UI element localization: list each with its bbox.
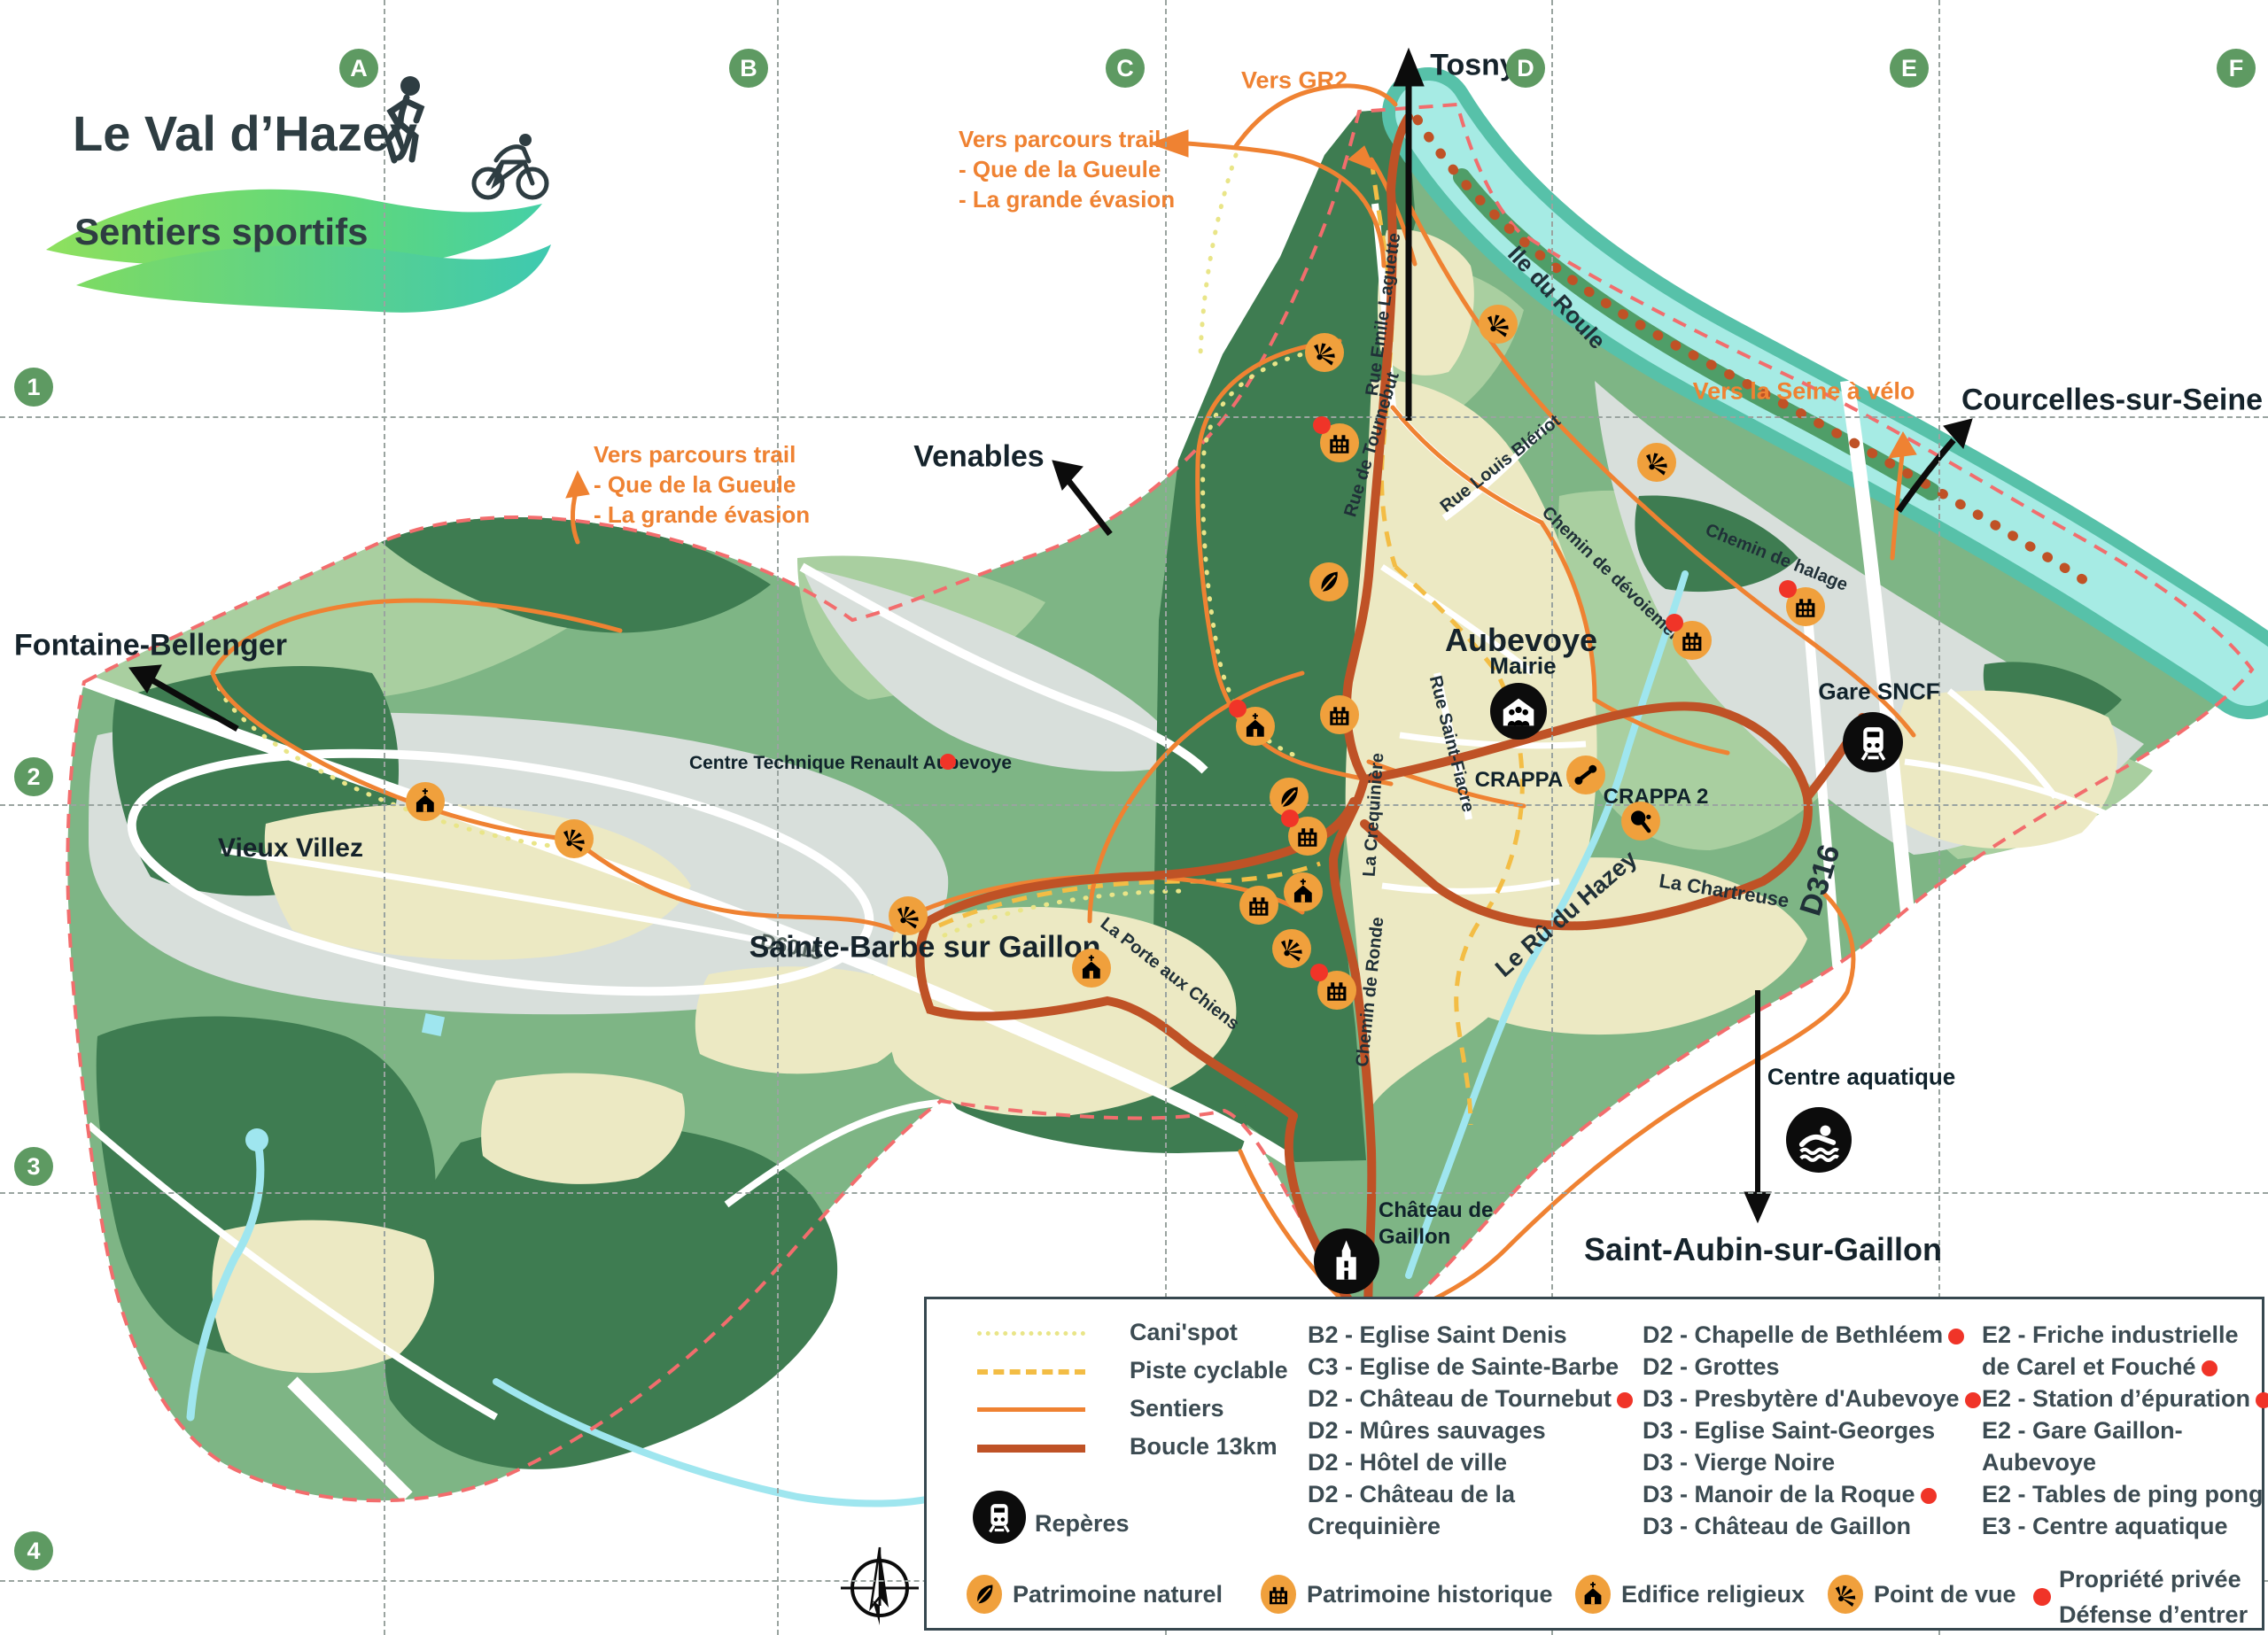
label-vers-parcours-trail-nord: Vers parcours trail - Que de la Gueule -… [959, 124, 1175, 214]
legend-poi-item: D3 - Presbytère d'Aubevoye [1643, 1383, 1981, 1414]
label-mairie: Mairie [1489, 653, 1556, 680]
legend-canispot-line [977, 1331, 1085, 1336]
viewpoint-marker-icon [1637, 443, 1676, 482]
grid-letter-F: F [2217, 49, 2256, 88]
legend-poi-item: de Carel et Fouché [1982, 1351, 2268, 1383]
legend-cat-point-de-vue: Point de vue [1828, 1575, 2016, 1614]
legend-cat-label: Patrimoine historique [1307, 1581, 1553, 1608]
grid-number-2: 2 [14, 757, 53, 796]
private-property-dot [1921, 1488, 1937, 1504]
legend-boucle-label: Boucle 13km [1130, 1433, 1278, 1461]
legend-poi-item: Aubevoye [1982, 1446, 2268, 1478]
leaf-icon [967, 1575, 1002, 1614]
private-property-dot [1965, 1392, 1981, 1408]
compass-icon [841, 1547, 919, 1625]
legend-boucle-line [977, 1445, 1085, 1453]
private-property-dot [1229, 700, 1247, 717]
label-vers-seine-a-velo: Vers la Seine à vélo [1693, 378, 1915, 406]
historic-marker-icon [1317, 971, 1356, 1010]
historic-marker-icon [1320, 423, 1359, 462]
legend-reperes-label: Repères [1035, 1510, 1130, 1538]
label-crappa1: CRAPPA 1 [1475, 768, 1581, 793]
legend-sentiers-line [977, 1407, 1085, 1412]
legend-poi-item: D3 - Eglise Saint-Georges [1643, 1414, 1981, 1446]
town-tosny: Tosny [1430, 49, 1517, 83]
town-courcelles: Courcelles-sur-Seine [1961, 384, 2263, 418]
viewpoint-marker-icon [1305, 333, 1344, 372]
poster-subtitle: Sentiers sportifs [74, 211, 368, 253]
town-venables: Venables [913, 440, 1044, 475]
viewpoint-marker-icon [1272, 929, 1311, 968]
grid-letter-E: E [1890, 49, 1929, 88]
label-gare-sncf: Gare SNCF [1818, 678, 1939, 706]
legend-poi-item: D3 - Vierge Noire [1643, 1446, 1981, 1478]
legend-poi-item: D2 - Hôtel de ville [1308, 1446, 1633, 1478]
dumbbell-marker-icon [1566, 756, 1605, 794]
private-note-line: Défense d’entrer [2059, 1597, 2248, 1632]
pingpong-marker-icon [1621, 802, 1660, 841]
label-centre-technique: Centre Technique Renault Aubevoye [689, 753, 1012, 774]
chateau-line: Château de [1379, 1197, 1493, 1224]
parcours-line: Vers parcours trail [959, 124, 1175, 154]
gridline-vertical [384, 0, 385, 1635]
legend-poi-item: D2 - Château de la [1308, 1478, 1633, 1510]
legend-column-3: E2 - Friche industriellede Carel et Fouc… [1982, 1319, 2268, 1542]
private-property-dot [1310, 964, 1328, 981]
gridline-horizontal [0, 416, 2268, 418]
legend-reperes-icon [973, 1491, 1026, 1544]
viewpoint-marker-icon [889, 896, 928, 935]
church-marker-icon [406, 782, 445, 821]
private-property-dot [940, 754, 956, 770]
legend-poi-item: D3 - Manoir de la Roque [1643, 1478, 1981, 1510]
swim-marker-icon [1786, 1107, 1852, 1173]
leaf-marker-icon [1309, 562, 1348, 601]
label-chateau-de-gaillon: Château de Gaillon [1379, 1197, 1493, 1251]
historic-marker-icon [1786, 587, 1825, 626]
legend-sentiers-label: Sentiers [1130, 1395, 1224, 1422]
legend-box: Cani'spot Piste cyclable Sentiers Boucle… [924, 1297, 2264, 1631]
legend-cat-label: Patrimoine naturel [1013, 1581, 1223, 1608]
private-property-dot [2202, 1360, 2218, 1376]
private-property-dot [2033, 1588, 2051, 1606]
viewpoint-icon [1828, 1575, 1863, 1614]
parcours-line: - La grande évasion [959, 184, 1175, 214]
private-note-line: Propriété privée [2059, 1561, 2248, 1597]
grid-letter-D: D [1506, 49, 1545, 88]
grid-letter-C: C [1106, 49, 1145, 88]
private-property-dot [1666, 614, 1683, 632]
label-vers-gr2: Vers GR2 [1241, 67, 1348, 95]
chateau-line: Gaillon [1379, 1224, 1493, 1251]
legend-poi-item: D3 - Château de Gaillon [1643, 1510, 1981, 1542]
map-poster: ABCDEF 1234 Le Val d’Hazey Sentiers spor… [0, 0, 2268, 1635]
legend-cat-patrimoine-naturel: Patrimoine naturel [967, 1575, 1223, 1614]
parcours-line: - Que de la Gueule [594, 469, 810, 500]
legend-cat-label: Point de vue [1874, 1581, 2016, 1608]
parcours-line: - La grande évasion [594, 500, 810, 530]
private-property-dot [1281, 810, 1299, 827]
town-vieux-villez: Vieux Villez [218, 833, 363, 864]
legend-private-note: Propriété privée Défense d’entrer [2059, 1561, 2248, 1632]
legend-poi-item: D2 - Château de Tournebut [1308, 1383, 1633, 1414]
grid-letter-B: B [729, 49, 768, 88]
historic-marker-icon [1288, 817, 1327, 856]
castle-marker-icon [1314, 1228, 1379, 1294]
grid-number-3: 3 [14, 1147, 53, 1186]
church-icon [1575, 1575, 1611, 1614]
cyclist-icon [474, 134, 547, 198]
parcours-line: - Que de la Gueule [959, 154, 1175, 184]
grid-number-4: 4 [14, 1531, 53, 1570]
private-property-dot [1617, 1392, 1633, 1408]
historic-marker-icon [1320, 695, 1359, 734]
legend-piste-line [977, 1369, 1085, 1375]
historic-building-icon [1261, 1575, 1296, 1614]
legend-column-1: B2 - Eglise Saint DenisC3 - Eglise de Sa… [1308, 1319, 1633, 1542]
mairie-marker-icon [1490, 683, 1547, 740]
legend-cat-patrimoine-historique: Patrimoine historique [1261, 1575, 1553, 1614]
label-crappa2: CRAPPA 2 [1604, 785, 1709, 810]
legend-poi-item: Crequinière [1308, 1510, 1633, 1542]
label-centre-aquatique: Centre aquatique [1767, 1064, 1955, 1091]
private-property-dot [1948, 1329, 1964, 1344]
church-marker-icon [1284, 872, 1323, 911]
legend-poi-item: D2 - Mûres sauvages [1308, 1414, 1633, 1446]
parcours-line: Vers parcours trail [594, 439, 810, 469]
legend-poi-item: D2 - Grottes [1643, 1351, 1981, 1383]
grid-number-1: 1 [14, 368, 53, 407]
gridline-horizontal [0, 804, 2268, 806]
legend-poi-item: E2 - Gare Gaillon- [1982, 1414, 2268, 1446]
private-property-dot [1779, 580, 1797, 598]
viewpoint-marker-icon [555, 819, 594, 858]
legend-poi-item: E2 - Station d’épuration [1982, 1383, 2268, 1414]
legend-cat-edifice-religieux: Edifice religieux [1575, 1575, 1805, 1614]
gridline-horizontal [0, 1192, 2268, 1194]
legend-canispot-label: Cani'spot [1130, 1319, 1238, 1346]
gridline-vertical [777, 0, 779, 1635]
legend-column-2: D2 - Chapelle de BethléemD2 - GrottesD3 … [1643, 1319, 1981, 1542]
church-marker-icon [1236, 707, 1275, 746]
town-saint-aubin: Saint-Aubin-sur-Gaillon [1584, 1231, 1942, 1268]
legend-poi-item: E3 - Centre aquatique [1982, 1510, 2268, 1542]
legend-poi-item: C3 - Eglise de Sainte-Barbe [1308, 1351, 1633, 1383]
train-marker-icon [1843, 712, 1903, 772]
town-fontaine-bellenger: Fontaine-Bellenger [14, 629, 287, 663]
legend-cat-label: Edifice religieux [1621, 1581, 1805, 1608]
legend-poi-item: E2 - Tables de ping pong [1982, 1478, 2268, 1510]
legend-poi-item: E2 - Friche industrielle [1982, 1319, 2268, 1351]
town-sainte-barbe: Sainte-Barbe sur Gaillon [750, 931, 1101, 965]
private-property-dot [2256, 1392, 2268, 1408]
private-property-dot [1313, 416, 1331, 434]
poster-title: Le Val d’Hazey [73, 105, 417, 162]
historic-marker-icon [1673, 621, 1712, 660]
legend-poi-item: D2 - Chapelle de Bethléem [1643, 1319, 1981, 1351]
legend-piste-label: Piste cyclable [1130, 1357, 1288, 1384]
legend-poi-item: B2 - Eglise Saint Denis [1308, 1319, 1633, 1351]
grid-letter-A: A [339, 49, 378, 88]
historic-marker-icon [1239, 886, 1278, 925]
label-vers-parcours-trail-ouest: Vers parcours trail - Que de la Gueule -… [594, 439, 810, 530]
church-marker-icon [1072, 949, 1111, 988]
viewpoint-marker-icon [1479, 305, 1518, 344]
